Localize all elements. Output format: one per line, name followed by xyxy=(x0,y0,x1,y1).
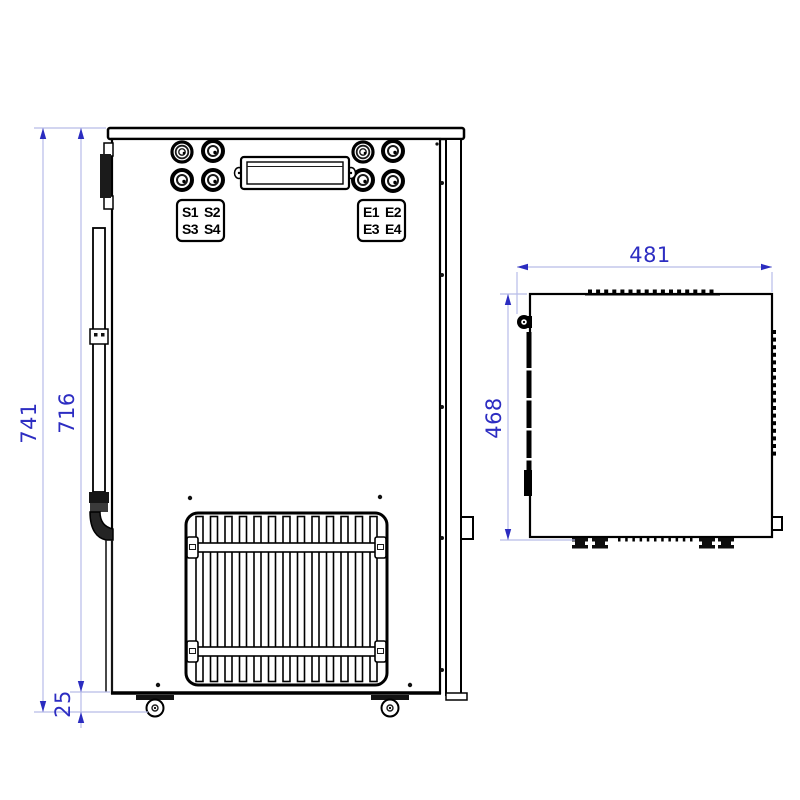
dim-overall-depth: 481 xyxy=(517,243,772,270)
dim-label-468: 468 xyxy=(482,397,506,439)
dim-label-25: 25 xyxy=(51,690,75,718)
bnc-connector xyxy=(172,142,192,162)
foot xyxy=(718,538,734,549)
knob xyxy=(517,315,532,329)
chassis-base xyxy=(111,693,441,717)
top-vent-serration xyxy=(585,290,720,296)
foot xyxy=(699,538,715,549)
dim-label-741: 741 xyxy=(17,402,41,444)
port-label-e1: E1 xyxy=(363,204,380,220)
chiller-dimension-drawing: S1 S2 S3 S4 E1 E2 E3 E4 xyxy=(0,0,800,800)
io-plate xyxy=(235,157,356,189)
technical-drawing-page: S1 S2 S3 S4 E1 E2 E3 E4 xyxy=(0,0,800,800)
pipe-elbow xyxy=(90,512,113,540)
bnc-connector xyxy=(172,170,192,190)
bnc-connector xyxy=(353,142,373,162)
pipe-coupling xyxy=(90,329,108,344)
port-label-s3: S3 xyxy=(182,221,199,237)
port-label-e4: E4 xyxy=(385,221,402,237)
rear-tab xyxy=(772,517,782,530)
dim-label-481: 481 xyxy=(629,243,671,267)
port-label-s1: S1 xyxy=(182,204,199,220)
dim-label-716: 716 xyxy=(55,392,79,434)
dim-body-depth: 468 xyxy=(482,294,511,540)
right-vent-serration xyxy=(771,330,776,456)
e-port-label-box: E1 E2 E3 E4 xyxy=(358,200,405,241)
dim-overall-height: 741 xyxy=(17,128,46,712)
bnc-connector xyxy=(203,141,223,161)
top-lid xyxy=(108,128,464,139)
side-panel xyxy=(530,294,772,537)
fan-grille xyxy=(186,513,387,685)
port-label-s4: S4 xyxy=(204,221,221,237)
port-label-e3: E3 xyxy=(363,221,380,237)
port-label-s2: S2 xyxy=(204,204,221,220)
side-panel-strip xyxy=(446,139,461,695)
dim-base-clearance: 25 xyxy=(51,690,84,723)
drain-pipe xyxy=(89,228,113,692)
caster-left xyxy=(136,695,174,717)
bottom-serration xyxy=(618,538,693,542)
dim-body-height: 716 xyxy=(55,128,84,728)
bnc-connector xyxy=(383,171,403,191)
caster-right xyxy=(371,695,409,717)
left-edge-coil-band xyxy=(524,332,532,496)
bnc-connector xyxy=(203,170,223,190)
side-view xyxy=(517,290,782,549)
foot xyxy=(592,538,608,549)
mounting-feet xyxy=(572,538,734,549)
pipe-union-nut xyxy=(89,492,109,503)
s-port-label-box: S1 S2 S3 S4 xyxy=(177,200,224,241)
side-fitting xyxy=(461,517,473,539)
side-panel-foot xyxy=(446,693,467,700)
rear-view: S1 S2 S3 S4 E1 E2 E3 E4 xyxy=(89,128,473,717)
port-label-e2: E2 xyxy=(385,204,402,220)
bnc-connector xyxy=(383,141,403,161)
